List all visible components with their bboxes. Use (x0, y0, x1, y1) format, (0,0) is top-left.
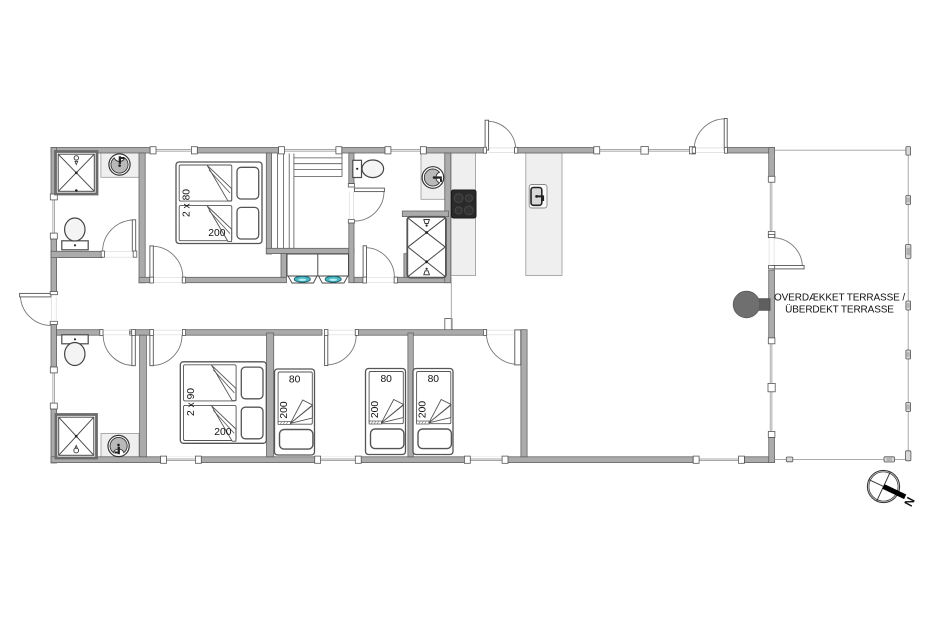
svg-text:OVERDÆKKET TERRASSE /: OVERDÆKKET TERRASSE / (774, 292, 905, 303)
svg-text:2 x 90: 2 x 90 (186, 388, 197, 416)
svg-text:200: 200 (418, 401, 429, 418)
svg-text:200: 200 (214, 427, 231, 438)
svg-text:2 x 80: 2 x 80 (181, 189, 192, 217)
svg-text:80: 80 (380, 374, 392, 385)
svg-text:80: 80 (428, 374, 440, 385)
svg-text:200: 200 (370, 401, 381, 418)
svg-text:200: 200 (279, 401, 290, 418)
svg-text:ÜBERDEKT TERRASSE: ÜBERDEKT TERRASSE (785, 303, 894, 315)
svg-text:200: 200 (208, 228, 225, 239)
svg-text:80: 80 (289, 374, 301, 385)
